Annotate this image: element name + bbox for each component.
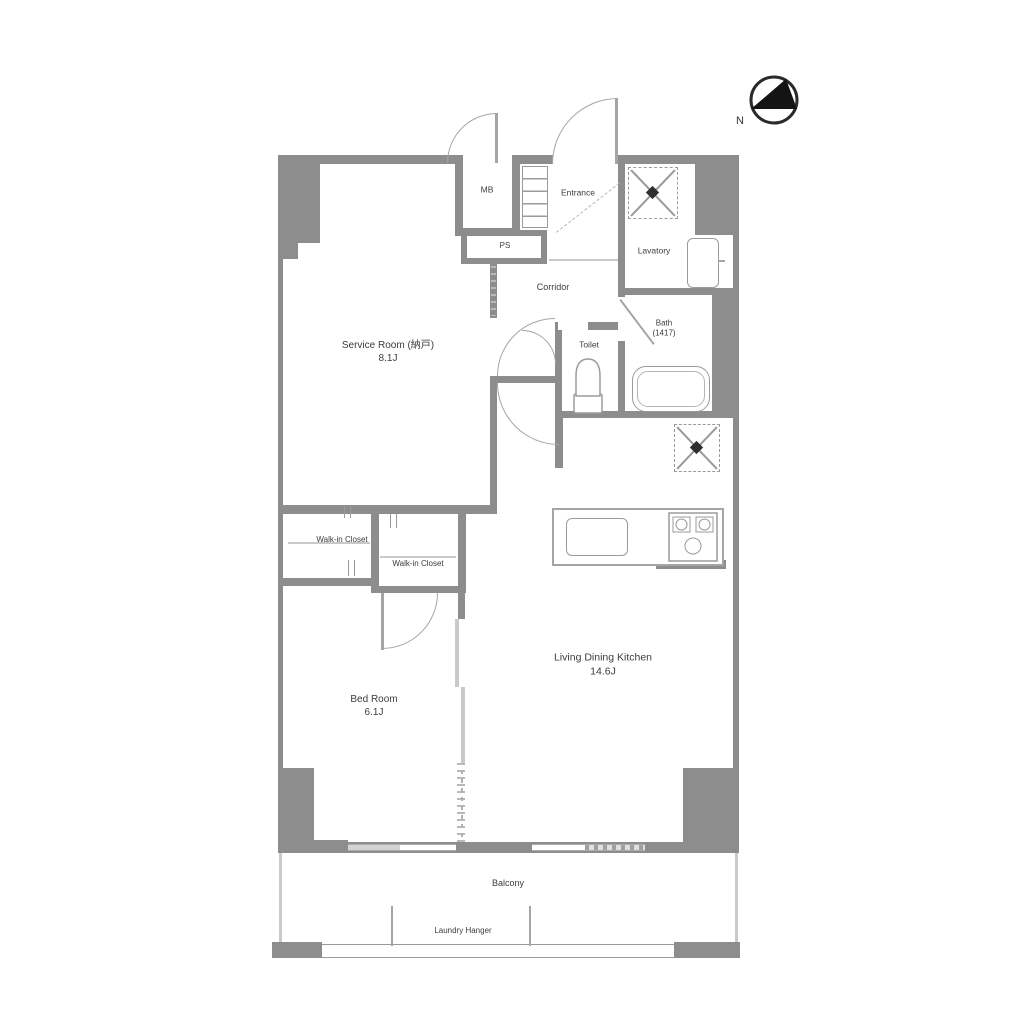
ldk-area: 14.6J	[554, 665, 652, 679]
stove-icon	[668, 512, 718, 562]
window-ldk-2	[585, 844, 645, 851]
compass-graphic: N	[734, 64, 808, 138]
closet-right-door-mark	[390, 514, 397, 528]
pillar-top-right	[695, 163, 739, 235]
room-label-walk-in-closet-left: Walk-in Closet	[316, 535, 368, 545]
closet-left-door-mark-top	[344, 506, 351, 518]
shoe-cabinet-icon	[522, 166, 548, 228]
balcony-railing	[320, 944, 676, 958]
washbasin-icon	[687, 238, 719, 288]
door-arc-ldk	[497, 383, 559, 445]
washbasin-tap-icon	[718, 260, 725, 262]
room-label-ps: PS	[500, 241, 511, 251]
washing-machine-pan-icon	[628, 167, 678, 219]
vent-hatch-corridor-wall	[491, 266, 496, 316]
pillar-bottom-left	[278, 768, 314, 853]
room-label-corridor: Corridor	[537, 282, 570, 294]
closet-left-door-mark-bottom	[348, 560, 355, 576]
door-leaf-bedroom	[381, 593, 384, 650]
bath-name: Bath	[652, 319, 675, 329]
x-mark	[675, 425, 719, 471]
label-laundry-hanger: Laundry Hanger	[434, 926, 491, 936]
laundry-hanger-pole-right-icon	[529, 906, 531, 946]
bedroom-area: 6.1J	[350, 706, 397, 719]
bedroom-name: Bed Room	[350, 693, 397, 706]
sliding-door-panel-2	[461, 687, 465, 763]
kitchen-sink-icon	[566, 518, 628, 556]
wall-lavatory-bottom	[618, 288, 718, 295]
sliding-door-panel-1	[455, 619, 459, 687]
room-label-bath: Bath (1417)	[652, 319, 675, 340]
wall-bedroom-divider-stub	[458, 593, 465, 619]
door-leaf-entrance	[615, 98, 618, 164]
room-label-entrance: Entrance	[561, 187, 595, 198]
wall-closet-right-bottom	[371, 586, 466, 593]
x-mark	[629, 168, 677, 218]
stove-burners	[668, 512, 718, 562]
wall-bath-right	[712, 288, 739, 418]
pillar-top-left	[278, 155, 320, 243]
service-room-area: 8.1J	[342, 352, 434, 365]
room-label-mb: MB	[481, 184, 494, 195]
door-opening-toilet	[558, 322, 588, 330]
entrance-step-line	[549, 259, 618, 261]
door-opening-service-room	[490, 318, 497, 376]
outer-wall-right	[733, 155, 739, 853]
room-label-balcony: Balcony	[492, 878, 524, 890]
window-bedroom-2	[400, 844, 456, 851]
ldk-name: Living Dining Kitchen	[554, 651, 652, 665]
compass-north-label: N	[736, 115, 744, 127]
bedroom-divider-dashes	[461, 770, 463, 840]
balcony-wall-left	[279, 853, 282, 945]
balcony-wall-right	[735, 853, 738, 945]
pillar-bottom-left-foot	[314, 840, 348, 853]
pillar-bottom-right	[683, 768, 739, 853]
door-arc-bedroom	[382, 593, 438, 649]
wall-mb-left	[455, 163, 463, 236]
pillar-top-left-step	[278, 243, 298, 259]
wall-closet-left-bottom	[283, 578, 379, 586]
outer-wall-left	[278, 155, 283, 853]
room-label-walk-in-closet-right: Walk-in Closet	[392, 559, 444, 569]
bathtub-inner-line	[637, 371, 705, 407]
wall-mb-right	[512, 163, 520, 236]
closet-right-hanger-pipe	[380, 556, 456, 558]
door-leaf-mb	[495, 113, 498, 163]
wall-corridor-end	[490, 376, 557, 383]
room-label-ldk: Living Dining Kitchen 14.6J	[554, 651, 652, 678]
balcony-end-block-left	[272, 942, 322, 958]
bath-size: (1417)	[652, 329, 675, 339]
door-arc-entrance	[552, 98, 618, 164]
service-room-name: Service Room (納戸)	[342, 339, 434, 352]
room-label-toilet: Toilet	[579, 339, 599, 350]
wall-closet-right-side	[458, 505, 466, 593]
north-compass-icon: N	[734, 64, 808, 138]
window-ldk-1	[532, 844, 585, 851]
refrigerator-icon	[674, 424, 720, 472]
laundry-hanger-pole-left-icon	[391, 906, 393, 946]
toilet-shape	[568, 352, 608, 416]
room-label-service-room: Service Room (納戸) 8.1J	[342, 339, 434, 365]
room-label-lavatory: Lavatory	[638, 245, 671, 256]
wall-closet-divider	[371, 505, 379, 586]
balcony-end-block-right	[674, 942, 740, 958]
room-label-bedroom: Bed Room 6.1J	[350, 693, 397, 719]
window-bedroom-1	[348, 844, 400, 851]
floor-plan: N MB PS Entrance Lavatory Bath (1417) To…	[0, 0, 1024, 1024]
door-arc-mb	[447, 113, 497, 163]
toilet-icon	[568, 352, 608, 416]
